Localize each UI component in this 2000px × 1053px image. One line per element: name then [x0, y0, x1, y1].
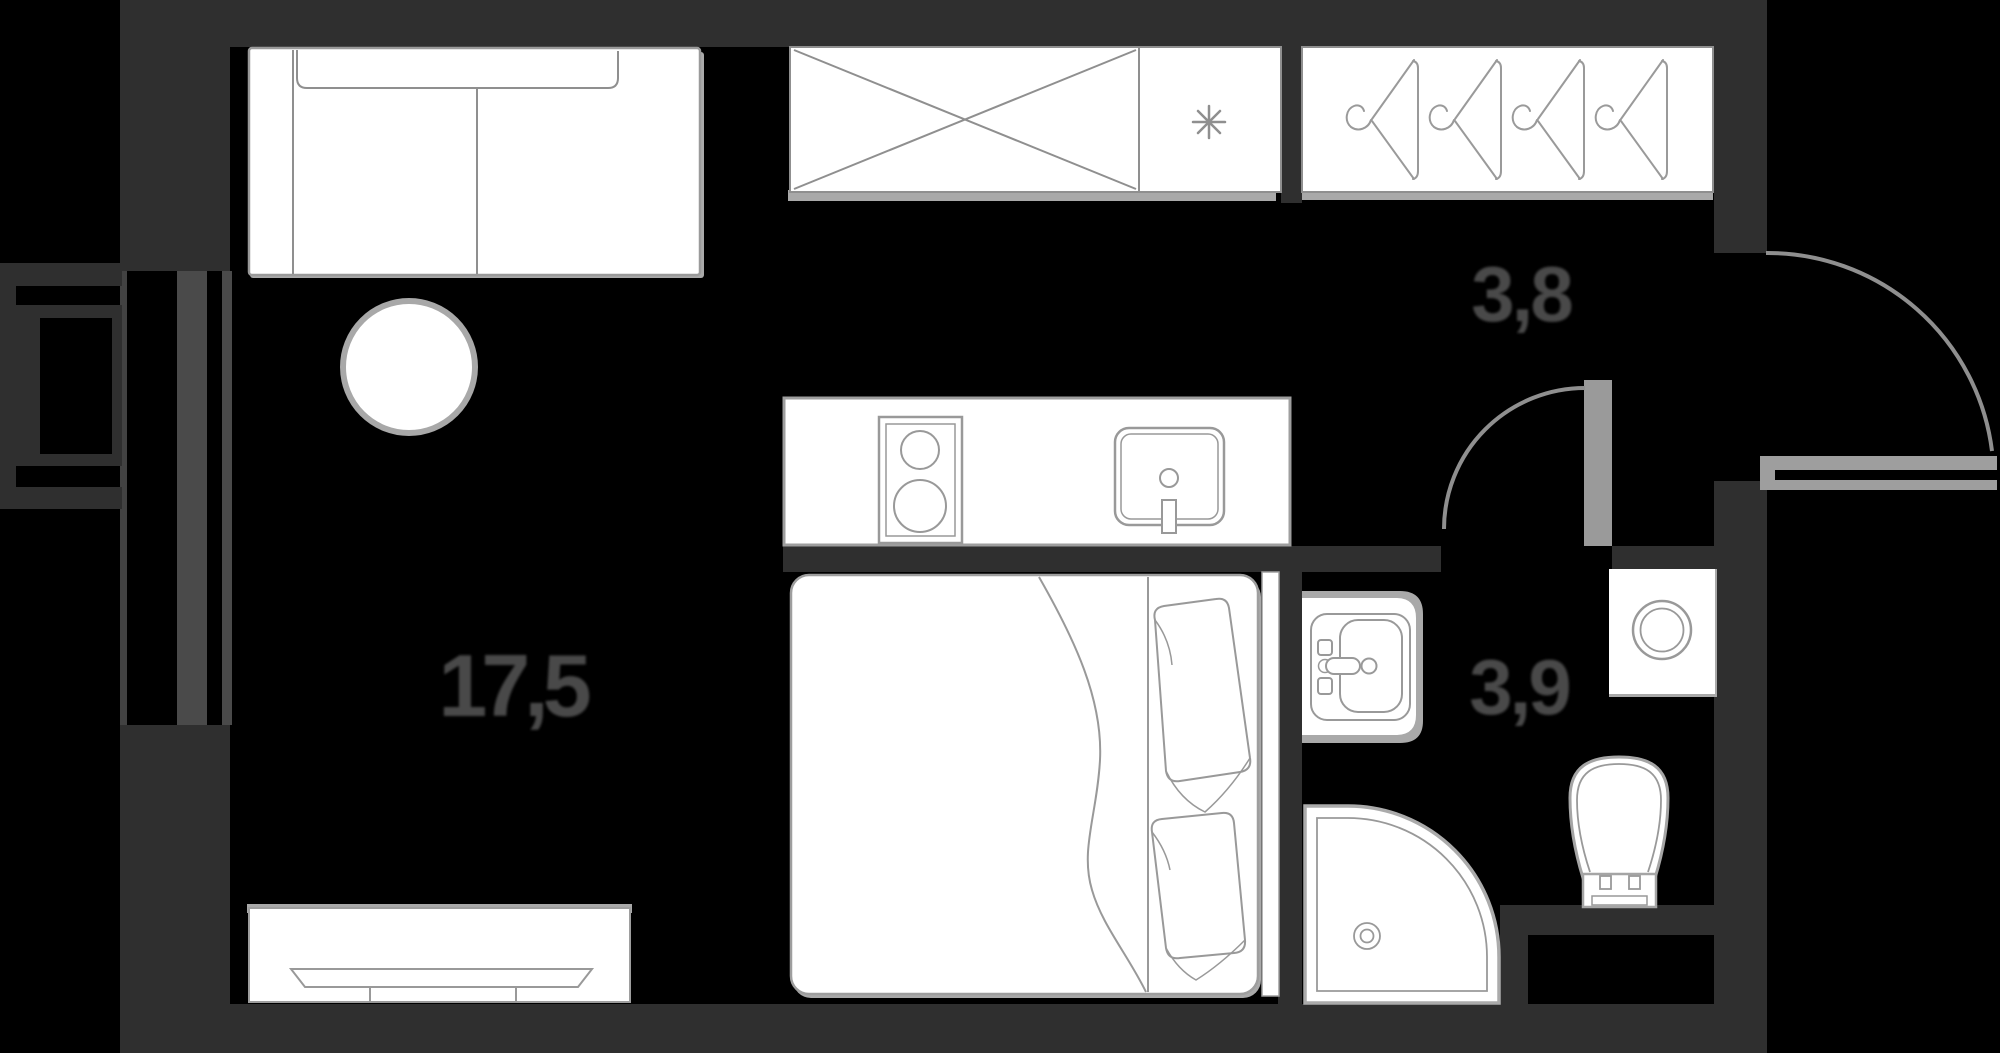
svg-text:17,5: 17,5 — [438, 636, 589, 735]
svg-text:3,8: 3,8 — [1471, 250, 1571, 338]
svg-text:3,9: 3,9 — [1469, 643, 1569, 731]
